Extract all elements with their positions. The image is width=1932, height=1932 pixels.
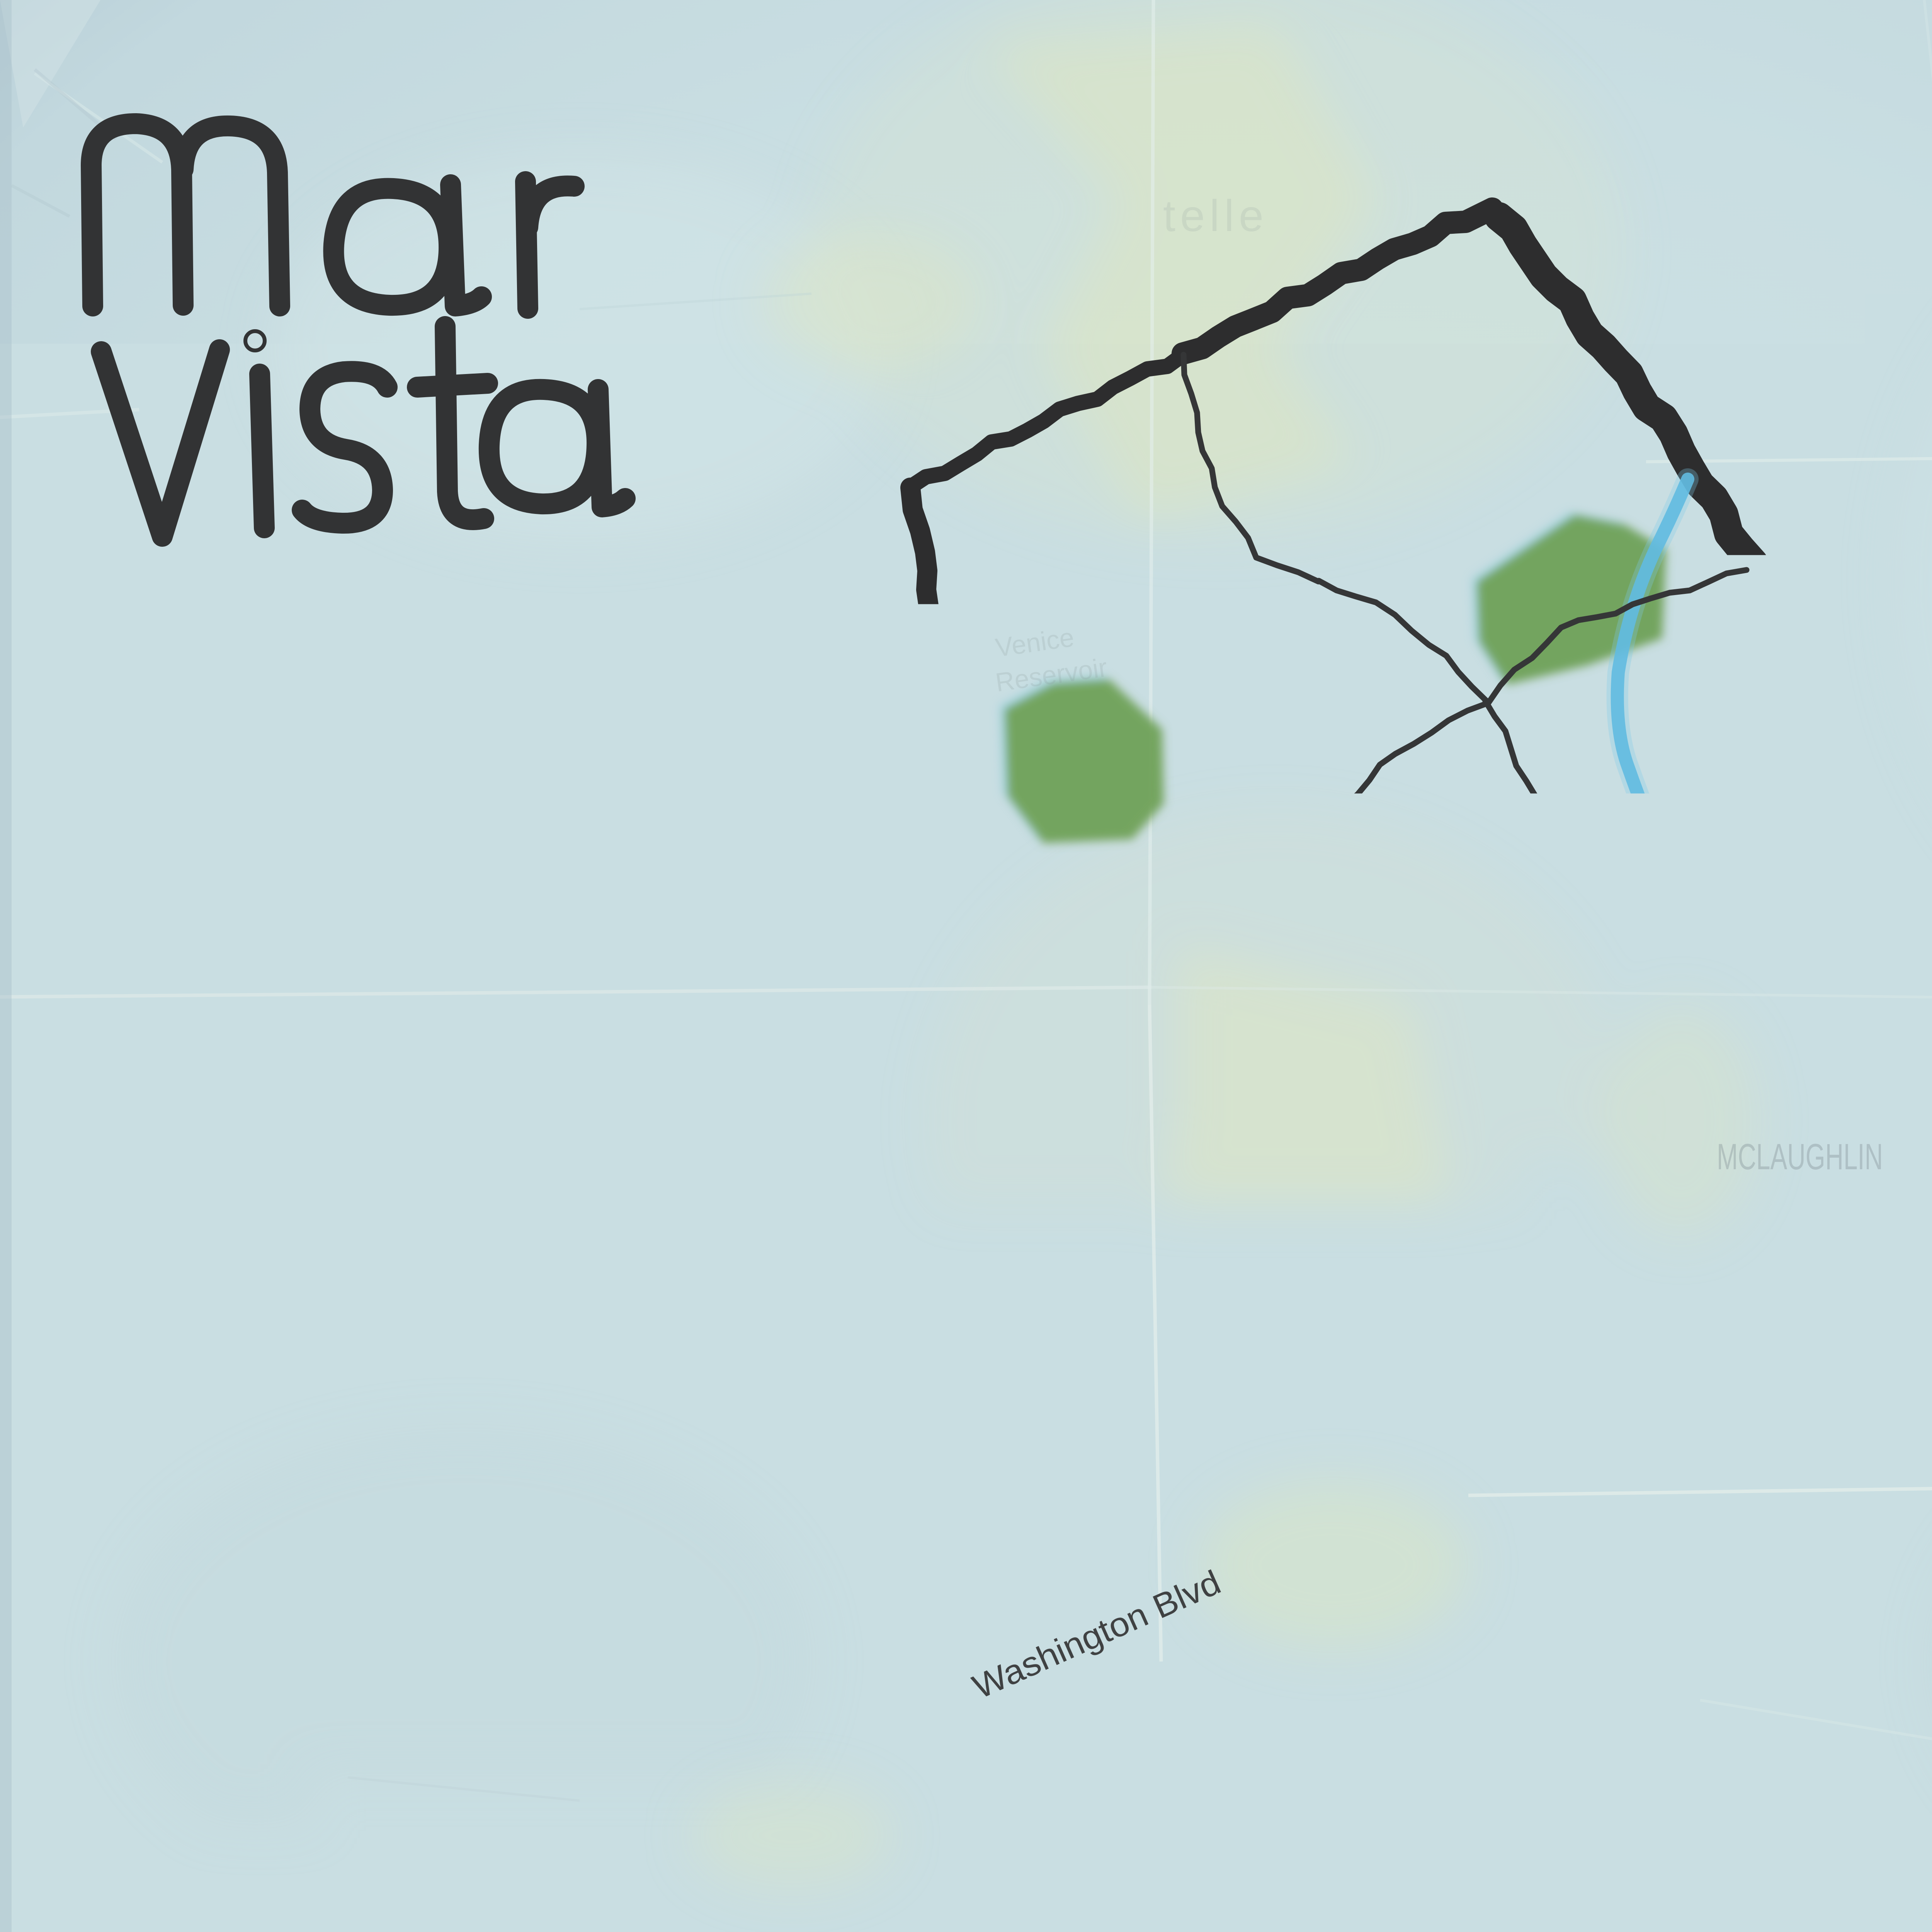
svg-text:N: N — [303, 1298, 358, 1383]
svg-text:VENICE: VENICE — [386, 1256, 537, 1325]
svg-text:405: 405 — [1479, 159, 1536, 207]
svg-text:VILLAGE: VILLAGE — [1698, 193, 1920, 266]
svg-text:PALMS: PALMS — [1777, 480, 1910, 545]
svg-text:S: S — [310, 1886, 361, 1932]
svg-text:E: E — [502, 1559, 551, 1658]
svg-text:WEST: WEST — [1616, 1488, 1697, 1531]
svg-text:WESTDALE: WESTDALE — [1270, 434, 1454, 498]
svg-text:Rose Ave: Rose Ave — [514, 970, 645, 1013]
svg-text:W: W — [85, 1577, 161, 1662]
svg-text:McLAUGHLIN: McLAUGHLIN — [1752, 1092, 1922, 1137]
svg-text:MCLAUGHLIN: MCLAUGHLIN — [1717, 1136, 1883, 1177]
svg-text:CULVER: CULVER — [1615, 1440, 1740, 1484]
svg-text:MAR VISTA: MAR VISTA — [959, 555, 1169, 622]
svg-text:SANTA MONICA: SANTA MONICA — [406, 699, 709, 764]
